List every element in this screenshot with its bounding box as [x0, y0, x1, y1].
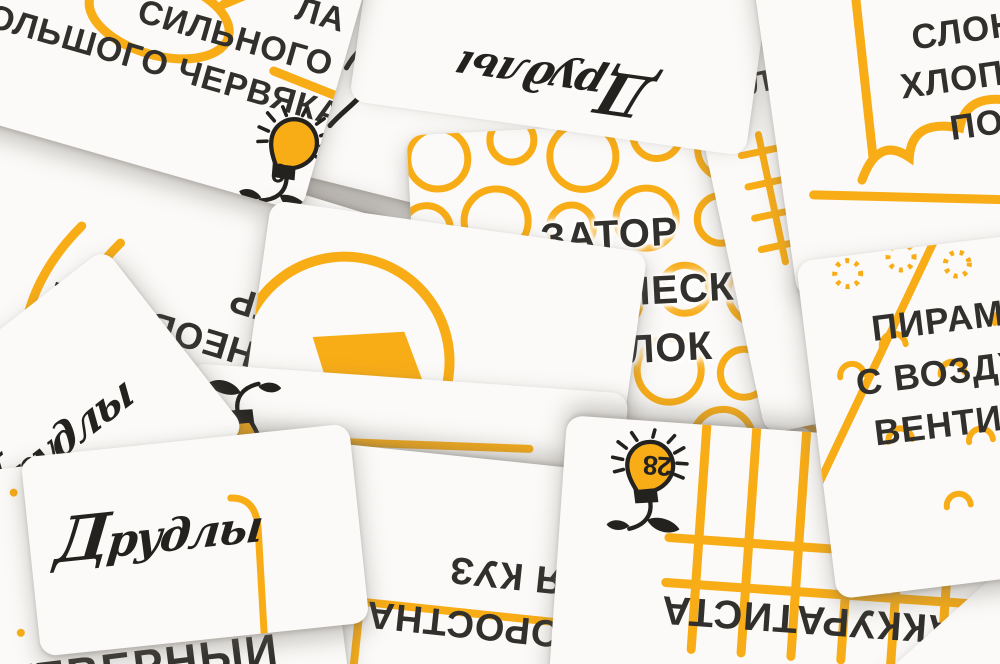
card-title: ПИРАМИ С ВОЗДУШ ВЕНТИЛЯ	[847, 281, 1000, 461]
card-back-bottom: Друдлы	[20, 423, 369, 656]
bulb-icon: 28	[603, 425, 696, 539]
card-title: СЛОН Д ХЛОПАЕТ ПО С	[830, 0, 1000, 166]
bulb-number: 28	[621, 447, 695, 483]
